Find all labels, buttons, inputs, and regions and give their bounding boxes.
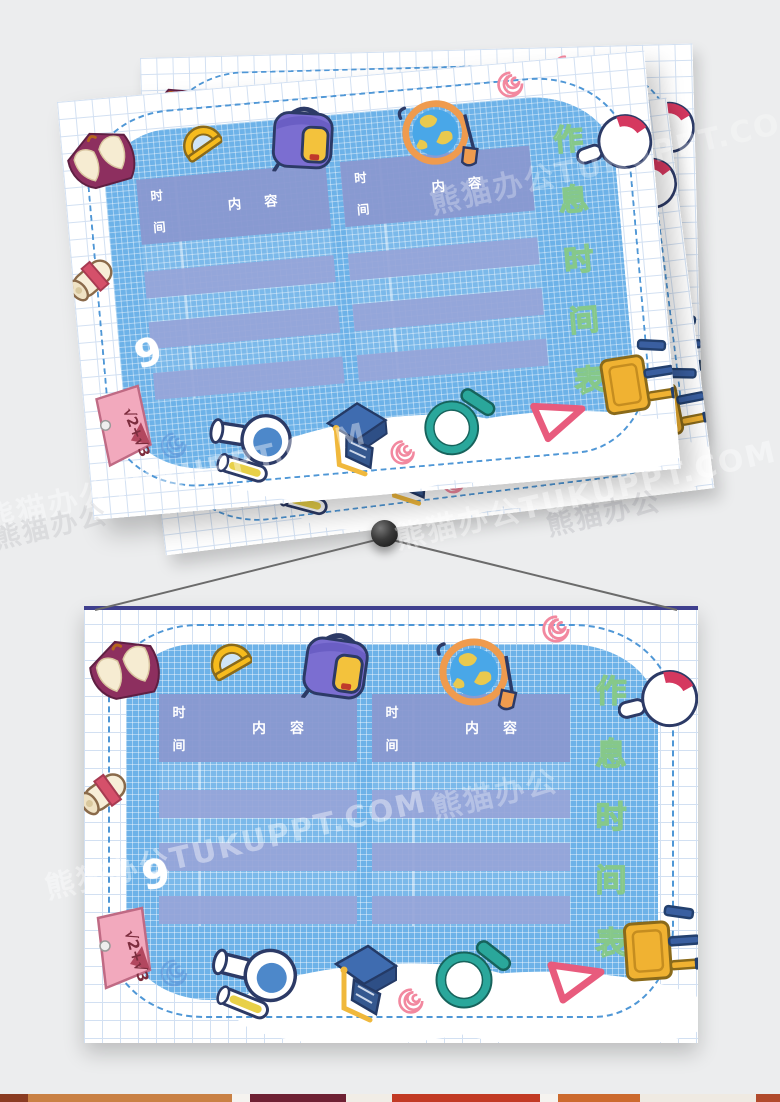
thumbnail-edge[interactable] (558, 1094, 640, 1102)
graduation-cap-icon (322, 389, 395, 485)
thumbnail-edge[interactable] (640, 1094, 756, 1102)
time-header-char: 间 (356, 199, 370, 218)
graduation-cap-icon (332, 934, 400, 1028)
thumbnail-edge[interactable] (0, 1094, 28, 1102)
table-row (159, 896, 357, 924)
magnifier-icon (418, 384, 503, 462)
table-row (372, 896, 570, 924)
title-char: 息 (589, 729, 633, 792)
table-row (372, 790, 570, 818)
template-preview-page: 时 间 内 容 时 间 内 (0, 0, 780, 1102)
set-square-icon (544, 956, 608, 1006)
schedule-card[interactable]: 时 间 内 容 时 间 内 (57, 51, 681, 520)
protractor-icon (174, 115, 224, 165)
globe-icon (392, 92, 485, 178)
stool-icon (596, 335, 680, 434)
thumbnail-edge[interactable] (392, 1094, 540, 1102)
spiral-doodle-icon (396, 986, 424, 1016)
globe-icon (432, 634, 522, 716)
content-header-char: 容 (290, 718, 304, 738)
time-header-char: 间 (385, 735, 398, 754)
thumbnail-edge[interactable] (540, 1094, 558, 1102)
title-char: 息 (550, 174, 597, 238)
spiral-doodle-icon (494, 69, 525, 100)
round-flask-icon (618, 668, 698, 734)
table-row (372, 843, 570, 871)
content-header-char: 容 (503, 718, 517, 738)
time-header-char: 间 (152, 217, 166, 236)
time-header: 时 间 (372, 694, 412, 762)
content-header-char: 容 (263, 191, 278, 211)
top-preview-card[interactable]: 时 间 内 容 时 间 内 (57, 51, 681, 520)
flask-with-tube-icon (210, 942, 300, 1024)
title-char: 时 (556, 234, 603, 298)
thumbnail-edge[interactable] (346, 1094, 392, 1102)
content-header-char: 内 (227, 194, 242, 214)
content-header-char: 容 (467, 173, 482, 193)
sticky-note-icon: √2+√3 (92, 906, 156, 992)
schedule-card[interactable]: 时 间 内 容 时 间 内 (84, 606, 698, 1043)
table-header: 时 间 内 容 (159, 694, 357, 762)
spiral-doodle-icon (158, 956, 188, 990)
schedule-table-left: 时 间 内 容 (136, 163, 345, 401)
spiral-doodle-icon (540, 614, 570, 644)
protractor-icon (204, 634, 252, 682)
pushpin (371, 520, 398, 547)
time-header: 时 间 (159, 694, 199, 762)
content-header-char: 内 (431, 176, 446, 196)
thumbnail-edge[interactable] (756, 1094, 780, 1102)
time-header-char: 时 (172, 702, 185, 721)
spiral-doodle-icon (387, 437, 416, 468)
flask-with-tube-icon (206, 405, 299, 491)
backpack-icon (293, 623, 379, 707)
table-row (159, 790, 357, 818)
schedule-table-right: 时 间 内 容 (340, 145, 549, 383)
backpack-icon (265, 100, 342, 175)
diploma-scroll-icon (62, 243, 125, 317)
schedule-table-right: 时 间 内 容 (372, 694, 570, 926)
magnifier-icon (432, 938, 514, 1012)
time-header-char: 时 (353, 167, 367, 186)
stool-icon (622, 904, 698, 1000)
time-header-char: 间 (172, 735, 185, 754)
hanging-preview-card[interactable]: 时 间 内 容 时 间 内 (84, 606, 698, 1043)
title-char: 时 (589, 792, 633, 855)
table-row (159, 843, 357, 871)
content-header: 内 容 (174, 163, 331, 241)
set-square-icon (526, 393, 591, 446)
time-header-char: 时 (385, 702, 398, 721)
spiral-doodle-icon (157, 428, 189, 463)
sticky-note-icon: √2+√3 (90, 383, 158, 471)
thumbnail-edge[interactable] (232, 1094, 250, 1102)
time-header: 时 间 (136, 177, 180, 245)
thumbnail-edge[interactable] (28, 1094, 232, 1102)
schedule-table-left: 时 间 内 容 (159, 694, 357, 926)
content-header: 内 容 (199, 694, 357, 762)
content-header-char: 内 (252, 718, 266, 738)
time-header: 时 间 (340, 159, 384, 227)
thumbnail-edge[interactable] (250, 1094, 346, 1102)
content-header-char: 内 (465, 718, 479, 738)
bottom-thumbnails-strip (0, 1094, 780, 1102)
time-header-char: 时 (150, 185, 164, 204)
round-flask-icon (573, 110, 659, 180)
diploma-scroll-icon (84, 758, 136, 830)
